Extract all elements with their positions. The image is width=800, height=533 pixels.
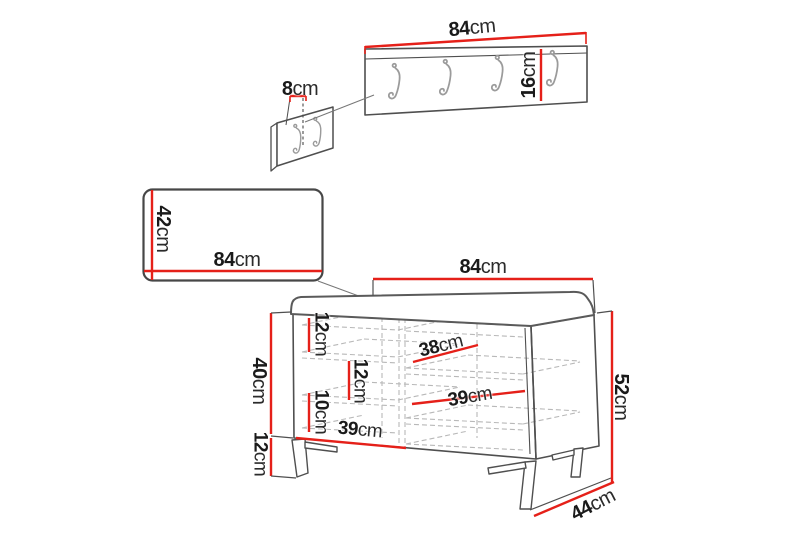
bottom-compartment-label: 10cm [312, 390, 331, 434]
top-compartment-label: 12cm [312, 312, 331, 356]
middle-compartment-label: 12cm [351, 359, 370, 403]
bench-width-label: 84cm [460, 257, 507, 277]
bench-cushion [291, 292, 594, 326]
coat-rack-width-label: 84cm [448, 16, 497, 40]
mirror-width-label: 84cm [214, 250, 261, 270]
cabinet-height-label: 40cm [249, 358, 269, 405]
hook-panel-spacing-label: 8cm [282, 79, 318, 99]
bottom-shelf-width-label: 39cm [337, 419, 383, 442]
bench-legs [292, 439, 583, 509]
diagram-line-art [0, 0, 800, 533]
furniture-dimension-diagram: 84cm 16cm 8cm 42cm 84cm 84cm 52cm 44cm 4… [0, 0, 800, 533]
mirror-height-label: 42cm [153, 206, 173, 253]
coat-rack-height-label: 16cm [519, 52, 539, 99]
mirror-panel-drawing [144, 190, 376, 303]
leg-height-label: 12cm [251, 432, 270, 476]
hook-panel-drawing [271, 95, 374, 171]
coat-rack-drawing [365, 32, 587, 115]
bench-total-height-label: 52cm [611, 374, 631, 421]
